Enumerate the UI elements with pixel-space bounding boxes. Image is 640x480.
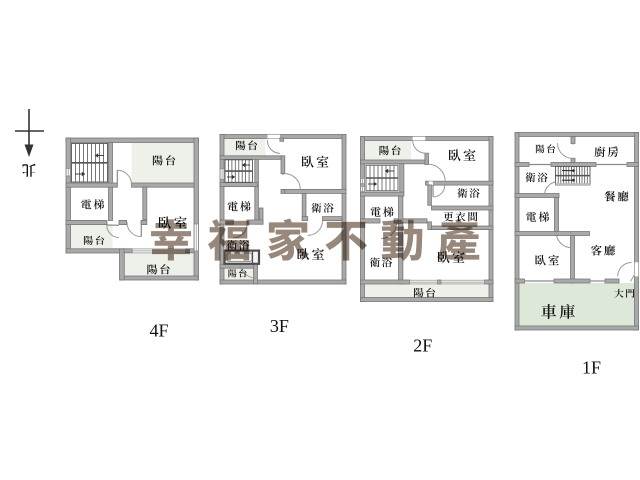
svg-text:3F: 3F [270,316,289,336]
svg-text:4F: 4F [149,321,168,341]
svg-text:1F: 1F [582,358,601,378]
svg-text:2F: 2F [413,336,432,356]
